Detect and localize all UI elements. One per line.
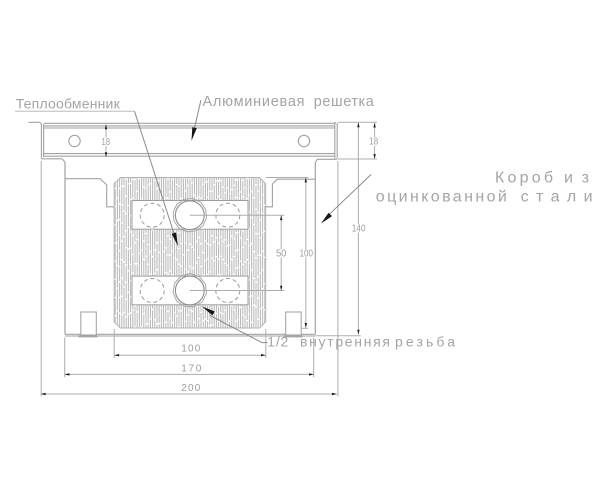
svg-text:100: 100 [300, 249, 314, 260]
svg-text:Короб: Короб [495, 169, 553, 186]
svg-text:140: 140 [352, 224, 366, 235]
svg-text:решетка: решетка [314, 94, 375, 110]
svg-text:100: 100 [181, 343, 200, 354]
svg-text:18: 18 [369, 137, 378, 148]
svg-text:200: 200 [181, 383, 200, 394]
svg-text:50: 50 [276, 249, 287, 260]
svg-text:Теплообменник: Теплообменник [16, 96, 121, 112]
svg-text:внутренняя: внутренняя [300, 333, 390, 349]
svg-text:18: 18 [101, 137, 110, 148]
svg-text:1/2: 1/2 [267, 333, 288, 349]
svg-text:Алюминиевая: Алюминиевая [203, 94, 305, 110]
svg-text:оцинкованной: оцинкованной [376, 189, 507, 206]
svg-text:170: 170 [181, 363, 201, 374]
